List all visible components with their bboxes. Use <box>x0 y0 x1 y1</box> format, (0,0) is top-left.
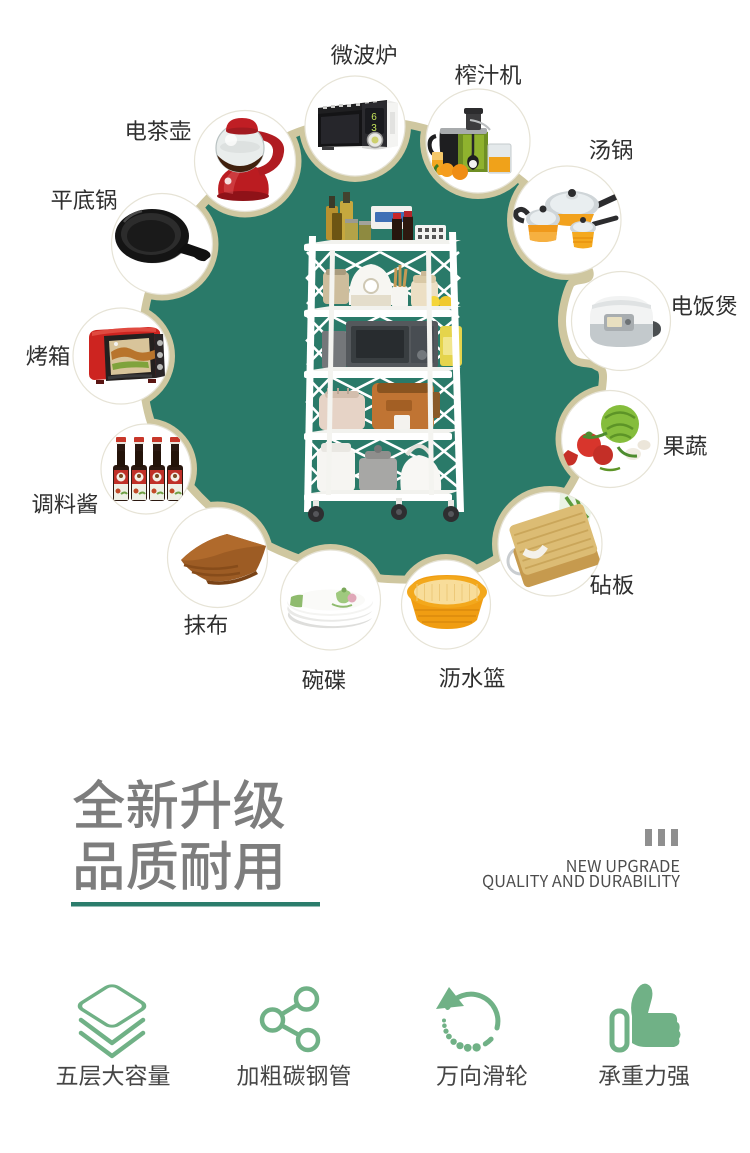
svg-text:6: 6 <box>371 112 377 123</box>
